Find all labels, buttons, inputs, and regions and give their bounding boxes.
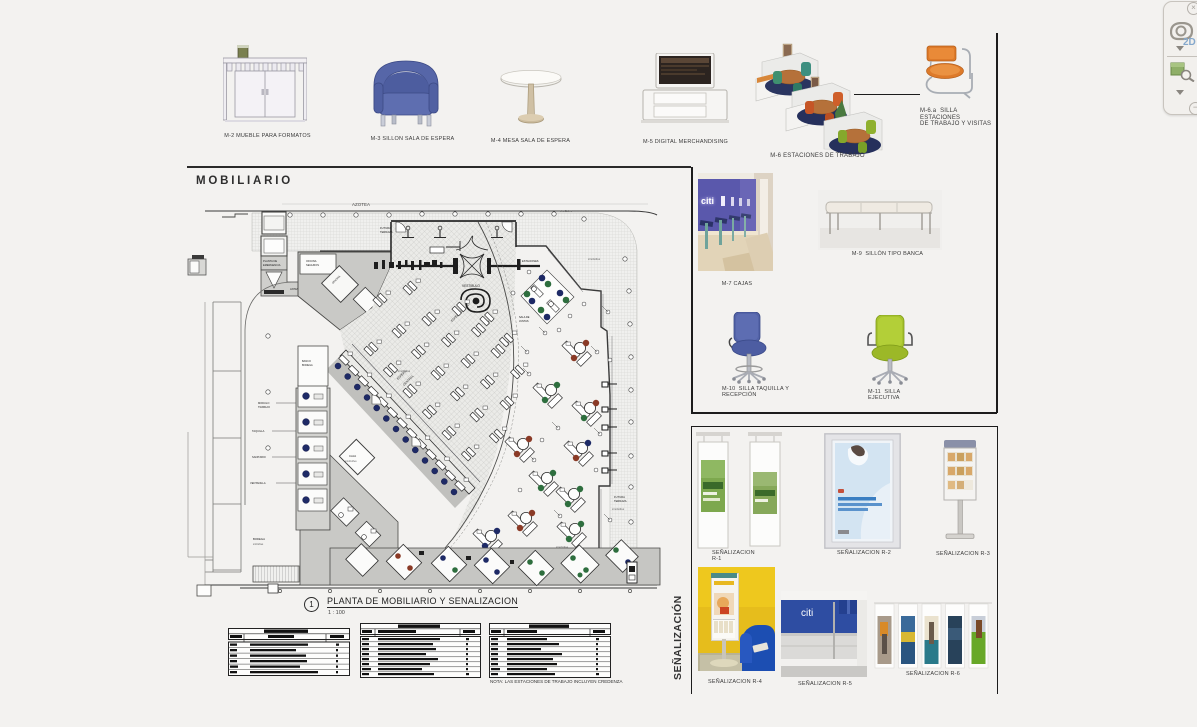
svg-text:JUNTAS: JUNTAS	[519, 320, 529, 323]
svg-text:SEGUROS: SEGUROS	[306, 263, 319, 267]
svg-text:TAQUILLA: TAQUILLA	[252, 429, 265, 433]
svg-text:EMERGENCIA: EMERGENCIA	[263, 263, 281, 267]
svg-text:VENTANILLA: VENTANILLA	[250, 481, 266, 485]
svg-text:BANCO: BANCO	[302, 360, 311, 363]
svg-text:s/nnCofres: s/nnCofres	[345, 460, 357, 463]
svg-text:SALA DE: SALA DE	[519, 316, 530, 319]
svg-text:FUTURA: FUTURA	[380, 226, 391, 230]
svg-text:s/nnCofres: s/nnCofres	[560, 210, 573, 213]
svg-text:AZOTEA: AZOTEA	[352, 202, 370, 207]
svg-text:BODEGA: BODEGA	[253, 537, 265, 541]
svg-text:VESTIBULO: VESTIBULO	[462, 284, 480, 288]
svg-text:TRABAJO: TRABAJO	[258, 405, 270, 409]
svg-text:SANITARIO: SANITARIO	[252, 455, 266, 459]
svg-text:TERRAZA: TERRAZA	[614, 499, 627, 503]
svg-text:PLANTA DE: PLANTA DE	[263, 259, 277, 263]
svg-text:s/nnCofres: s/nnCofres	[398, 370, 411, 373]
svg-text:s/nnCofres: s/nnCofres	[612, 508, 625, 511]
svg-text:FUTURA: FUTURA	[614, 495, 625, 499]
svg-text:2D: 2D	[1183, 37, 1196, 46]
svg-text:BODEGA: BODEGA	[302, 364, 313, 367]
svg-text:TERRAZA: TERRAZA	[380, 230, 393, 234]
svg-text:OFICINA: OFICINA	[306, 259, 317, 263]
svg-text:MODULO: MODULO	[258, 401, 269, 405]
svg-text:s/nCofres: s/nCofres	[253, 543, 264, 546]
svg-text:ESTACIONES: ESTACIONES	[522, 259, 539, 263]
svg-text:CAJA: CAJA	[349, 454, 356, 458]
svg-text:s/nnCofres: s/nnCofres	[588, 258, 601, 261]
